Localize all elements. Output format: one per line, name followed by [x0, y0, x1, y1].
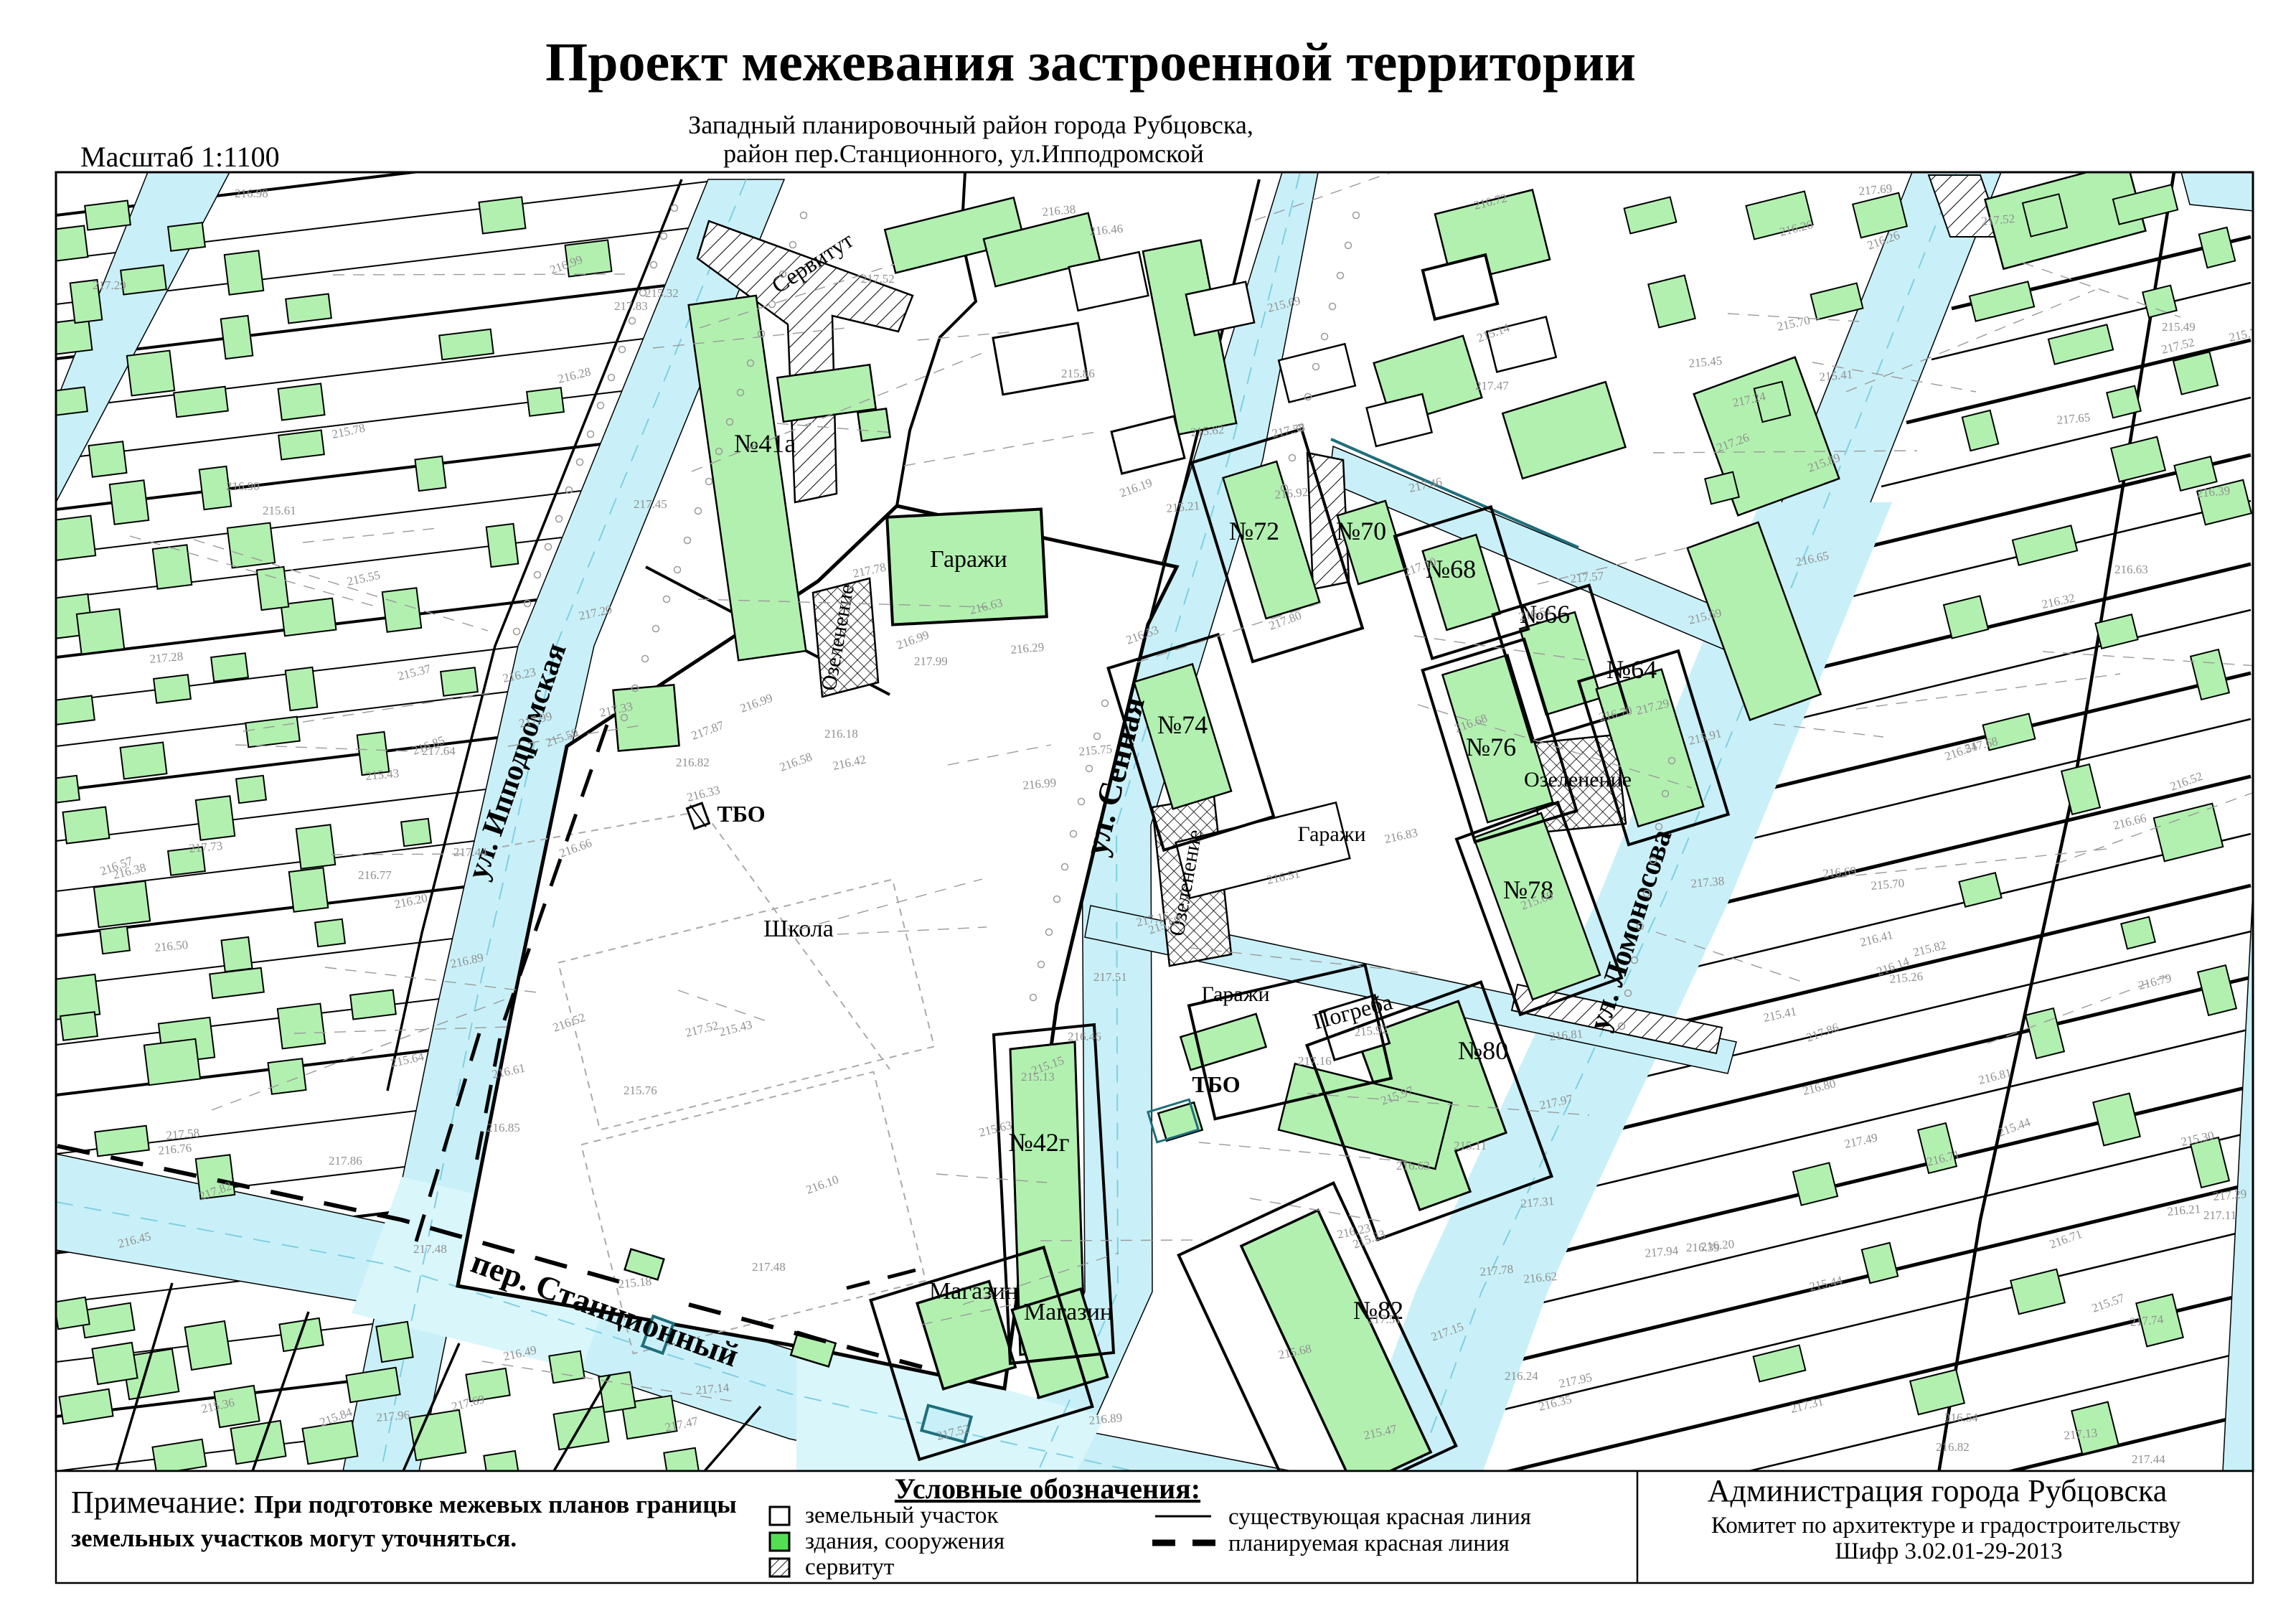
svg-text:215.92: 215.92: [1354, 1023, 1388, 1039]
svg-text:216.82: 216.82: [676, 756, 710, 769]
svg-text:216.99: 216.99: [1022, 776, 1057, 792]
svg-text:216.46: 216.46: [1068, 1030, 1101, 1043]
svg-text:215.61: 215.61: [263, 504, 296, 517]
svg-text:Озеленение: Озеленение: [1524, 768, 1632, 791]
svg-text:№70: №70: [1336, 517, 1386, 545]
svg-text:Шифр 3.02.01-29-2013: Шифр 3.02.01-29-2013: [1835, 1539, 2062, 1564]
svg-text:Гаражи: Гаражи: [1297, 822, 1365, 846]
svg-text:217.58: 217.58: [166, 1126, 200, 1142]
svg-text:217.78: 217.78: [1479, 1262, 1514, 1279]
svg-text:216.39: 216.39: [1686, 1241, 1720, 1254]
svg-text:217.11: 217.11: [2203, 1208, 2236, 1222]
svg-text:217.69: 217.69: [1858, 182, 1893, 198]
svg-text:Гаражи: Гаражи: [1201, 982, 1269, 1006]
svg-text:216.69: 216.69: [1822, 864, 1857, 880]
svg-text:215.49: 215.49: [2162, 320, 2196, 334]
svg-text:планируемая красная линия: планируемая красная линия: [1228, 1531, 1510, 1556]
svg-text:216.38: 216.38: [1042, 202, 1076, 219]
svg-text:217.38: 217.38: [1690, 874, 1725, 891]
svg-text:217.86: 217.86: [329, 1154, 362, 1168]
svg-text:215.75: 215.75: [1078, 742, 1113, 758]
svg-text:217.52: 217.52: [1981, 212, 2015, 228]
svg-text:Масштаб 1:1100: Масштаб 1:1100: [80, 141, 280, 173]
svg-text:217.52: 217.52: [861, 272, 895, 286]
svg-text:215.45: 215.45: [1688, 354, 1723, 370]
svg-text:Проект межевания застроенной т: Проект межевания застроенной территории: [545, 32, 1636, 93]
svg-text:Магазин: Магазин: [1024, 1299, 1113, 1325]
svg-text:217.48: 217.48: [752, 1260, 786, 1274]
svg-text:217.31: 217.31: [1520, 1194, 1555, 1211]
svg-text:217.29: 217.29: [2213, 1187, 2247, 1203]
svg-text:217.51: 217.51: [1368, 1312, 1401, 1326]
svg-text:216.76: 216.76: [158, 1141, 192, 1157]
svg-text:Администрация города Рубцовска: Администрация города Рубцовска: [1708, 1473, 2168, 1508]
svg-text:№42г: №42г: [1008, 1128, 1069, 1157]
svg-text:217.45: 217.45: [634, 497, 667, 511]
svg-text:216.82: 216.82: [1936, 1440, 1970, 1454]
svg-text:район пер.Станционного, ул.Ипп: район пер.Станционного, ул.Ипподромской: [723, 139, 1204, 168]
svg-text:215.70: 215.70: [1871, 876, 1905, 893]
svg-text:216.81: 216.81: [1549, 1027, 1584, 1043]
svg-text:217.44: 217.44: [2132, 1452, 2165, 1466]
svg-text:ТБО: ТБО: [1192, 1071, 1240, 1097]
svg-text:Школа: Школа: [763, 916, 834, 942]
svg-text:№41а: №41а: [734, 429, 796, 458]
svg-text:215.43: 215.43: [365, 766, 400, 783]
svg-text:215.32: 215.32: [645, 286, 679, 300]
svg-text:216.63: 216.63: [2114, 563, 2148, 576]
svg-text:217.51: 217.51: [1093, 970, 1127, 984]
svg-text:217.99: 217.99: [914, 654, 948, 668]
svg-text:216.85: 216.85: [486, 1121, 520, 1135]
svg-text:216.77: 216.77: [358, 868, 392, 882]
svg-text:217.83: 217.83: [614, 299, 648, 313]
svg-text:Комитет по архитектуре и гра: Комитет по архитектуре и градостроительс…: [1711, 1513, 2181, 1539]
svg-text:216.98: 216.98: [235, 187, 268, 200]
svg-text:215.62: 215.62: [1190, 423, 1225, 439]
svg-text:216.50: 216.50: [154, 938, 189, 954]
svg-text:№76: №76: [1466, 733, 1516, 761]
svg-text:№74: №74: [1157, 710, 1208, 739]
svg-text:217.29: 217.29: [93, 278, 126, 292]
svg-text:Условные обозначения:: Условные обозначения:: [895, 1472, 1200, 1505]
svg-text:216.29: 216.29: [1010, 640, 1045, 657]
svg-text:216.90: 216.90: [226, 479, 260, 493]
svg-text:Гаражи: Гаражи: [930, 546, 1007, 573]
svg-text:216.24: 216.24: [1505, 1369, 1538, 1383]
svg-text:217.13: 217.13: [2064, 1426, 2098, 1442]
svg-text:217.16: 217.16: [1298, 1054, 1332, 1068]
svg-text:215.41: 215.41: [1819, 367, 1853, 384]
svg-text:217.28: 217.28: [149, 649, 184, 666]
svg-text:Примечание: При подготовке меж: Примечание: При подготовке межевых плано…: [71, 1485, 737, 1520]
svg-text:215.76: 215.76: [624, 1084, 657, 1097]
svg-text:216.92: 216.92: [1274, 485, 1309, 502]
svg-text:№72: №72: [1229, 517, 1279, 545]
svg-text:№64: №64: [1606, 655, 1657, 684]
svg-text:215.86: 215.86: [1061, 367, 1095, 380]
svg-text:216.46: 216.46: [1089, 222, 1124, 238]
svg-text:здания, сооружения: здания, сооружения: [805, 1528, 1004, 1554]
svg-text:Западный планировочный район г: Западный планировочный район города Рубц…: [688, 111, 1253, 139]
svg-text:216.18: 216.18: [824, 727, 858, 741]
svg-text:земельный участок: земельный участок: [805, 1503, 999, 1528]
svg-text:земельных участков могут уточн: земельных участков могут уточняться.: [71, 1524, 517, 1552]
svg-text:217.47: 217.47: [1475, 379, 1509, 393]
svg-text:№80: №80: [1458, 1036, 1508, 1065]
svg-text:ТБО: ТБО: [717, 801, 765, 827]
svg-text:216.89: 216.89: [1088, 1411, 1123, 1427]
svg-text:216.21: 216.21: [2167, 1202, 2201, 1218]
svg-text:216.54: 216.54: [1944, 1411, 1978, 1424]
svg-text:217.73: 217.73: [189, 839, 223, 855]
svg-text:216.62: 216.62: [1523, 1269, 1558, 1286]
svg-text:216.39: 216.39: [2196, 484, 2231, 500]
svg-text:существующая красная линия: существующая красная линия: [1228, 1504, 1531, 1530]
svg-text:217.65: 217.65: [2056, 410, 2091, 427]
svg-text:215.21: 215.21: [1166, 499, 1200, 515]
svg-text:215.11: 215.11: [1454, 1139, 1487, 1152]
svg-text:сервитут: сервитут: [805, 1554, 894, 1580]
svg-text:215.18: 215.18: [618, 1274, 652, 1291]
svg-text:217.44: 217.44: [453, 845, 487, 859]
svg-text:217.48: 217.48: [413, 1242, 447, 1256]
svg-text:217.96: 217.96: [376, 1408, 410, 1424]
